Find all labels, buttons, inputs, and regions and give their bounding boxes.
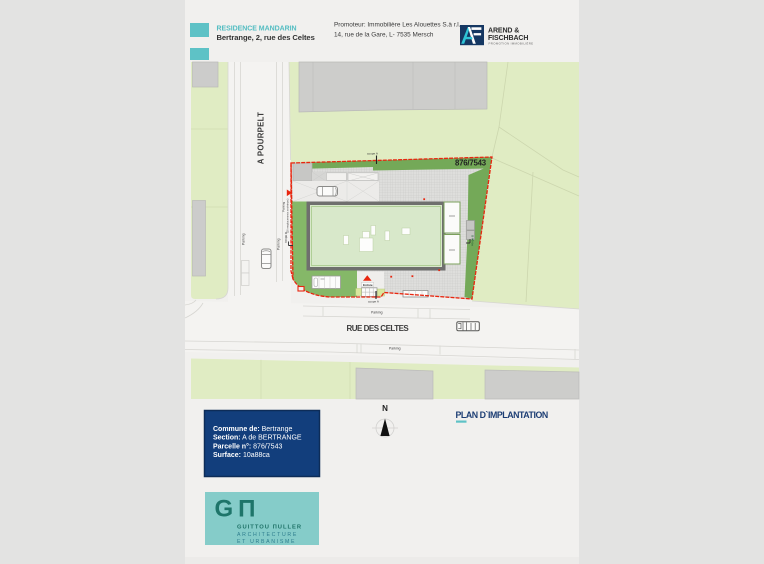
svg-text:Parking: Parking xyxy=(371,311,383,315)
svg-text:A POURPELT: A POURPELT xyxy=(257,112,266,164)
svg-text:Parking: Parking xyxy=(277,238,281,250)
svg-text:Promoteur: Immobilière Les Alo: Promoteur: Immobilière Les Alouettes S.à… xyxy=(334,22,461,29)
svg-text:GΠ: GΠ xyxy=(215,496,261,523)
svg-text:Bertrange, 2, rue des Celtes: Bertrange, 2, rue des Celtes xyxy=(217,33,315,42)
svg-text:Parking: Parking xyxy=(282,201,286,212)
svg-text:(20 emplacements extérieurs): (20 emplacements extérieurs) xyxy=(286,199,290,233)
svg-text:GUITTOU ΠULLER: GUITTOU ΠULLER xyxy=(237,525,302,531)
svg-text:Entrée: Entrée xyxy=(363,283,373,287)
svg-text:Section: A de BERTRANGE: Section: A de BERTRANGE xyxy=(213,435,302,442)
svg-text:PLAN D`IMPLANTATION: PLAN D`IMPLANTATION xyxy=(456,410,548,420)
svg-text:ARCHITECTURE: ARCHITECTURE xyxy=(237,532,298,538)
svg-text:Commune de: Bertrange: Commune de: Bertrange xyxy=(213,426,292,433)
svg-text:Parking: Parking xyxy=(242,233,246,245)
svg-text:Parking: Parking xyxy=(389,347,401,351)
svg-text:coupe A: coupe A xyxy=(368,300,379,304)
svg-text:coupe B: coupe B xyxy=(470,235,475,246)
svg-text:Parcelle n°: 876/7543: Parcelle n°: 876/7543 xyxy=(213,442,282,450)
svg-text:876/7543: 876/7543 xyxy=(455,159,487,168)
svg-text:RESIDENCE MANDARIN: RESIDENCE MANDARIN xyxy=(217,26,297,33)
svg-text:14, rue de la Gare, L- 7535 M: 14, rue de la Gare, L- 7535 Mersch xyxy=(334,32,434,39)
svg-text:N: N xyxy=(382,404,388,413)
svg-text:coupe A: coupe A xyxy=(367,152,378,156)
svg-text:AREND &: AREND & xyxy=(488,28,519,35)
svg-text:Surface: 10a88ca: Surface: 10a88ca xyxy=(213,452,270,459)
svg-text:ET URBANISME: ET URBANISME xyxy=(237,539,296,545)
svg-text:PROMOTION IMMOBILIÈRE: PROMOTION IMMOBILIÈRE xyxy=(489,41,534,46)
svg-text:RUE DES CELTES: RUE DES CELTES xyxy=(347,324,410,333)
